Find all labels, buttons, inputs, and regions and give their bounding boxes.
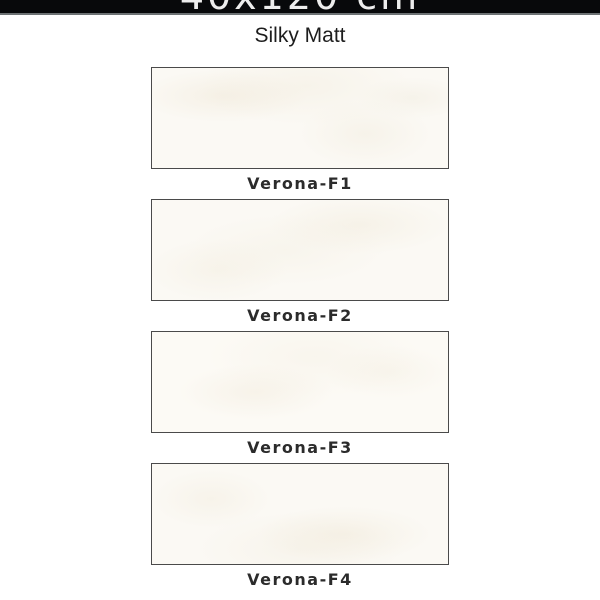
tile-label: Verona-F1 xyxy=(151,169,449,199)
tile-sample xyxy=(151,463,449,565)
tile-swatch: Verona-F3 xyxy=(151,331,449,463)
swatch-list: Verona-F1 Verona-F2 Verona-F3 Verona-F4 xyxy=(0,67,600,595)
tile-swatch: Verona-F1 xyxy=(151,67,449,199)
size-header-bar: 40x120 cm xyxy=(0,0,600,15)
finish-title: Silky Matt xyxy=(0,23,600,49)
tile-sample xyxy=(151,331,449,433)
tile-sample xyxy=(151,199,449,301)
tile-sample xyxy=(151,67,449,169)
size-label: 40x120 cm xyxy=(180,0,420,15)
catalog-page: 40x120 cm Silky Matt Verona-F1 Verona-F2… xyxy=(0,0,600,600)
tile-label: Verona-F4 xyxy=(151,565,449,595)
tile-swatch: Verona-F4 xyxy=(151,463,449,595)
tile-label: Verona-F2 xyxy=(151,301,449,331)
tile-swatch: Verona-F2 xyxy=(151,199,449,331)
tile-label: Verona-F3 xyxy=(151,433,449,463)
